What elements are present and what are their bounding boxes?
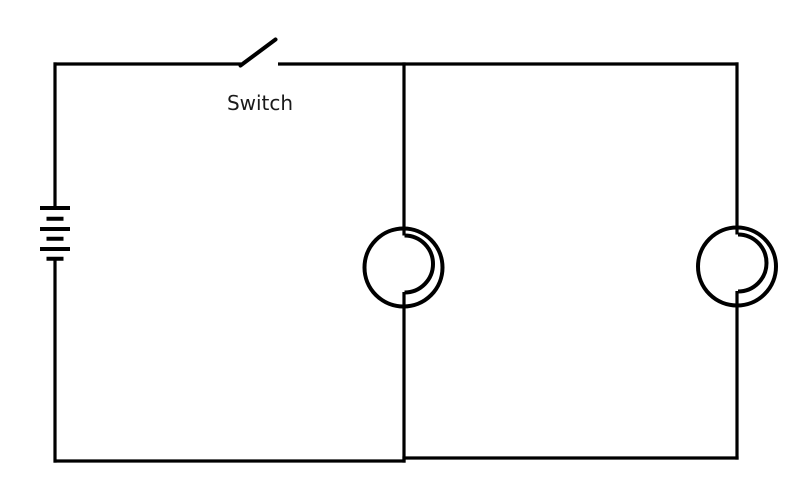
switch-blade bbox=[241, 40, 276, 66]
battery-symbol bbox=[40, 208, 70, 259]
switch-symbol bbox=[241, 40, 276, 66]
lamp-filament bbox=[405, 236, 434, 293]
circuit-diagram: Switch bbox=[0, 0, 812, 501]
switch-label: Switch bbox=[227, 91, 293, 115]
lamp-filament bbox=[738, 235, 767, 292]
diagram-canvas: Switch bbox=[0, 0, 812, 501]
